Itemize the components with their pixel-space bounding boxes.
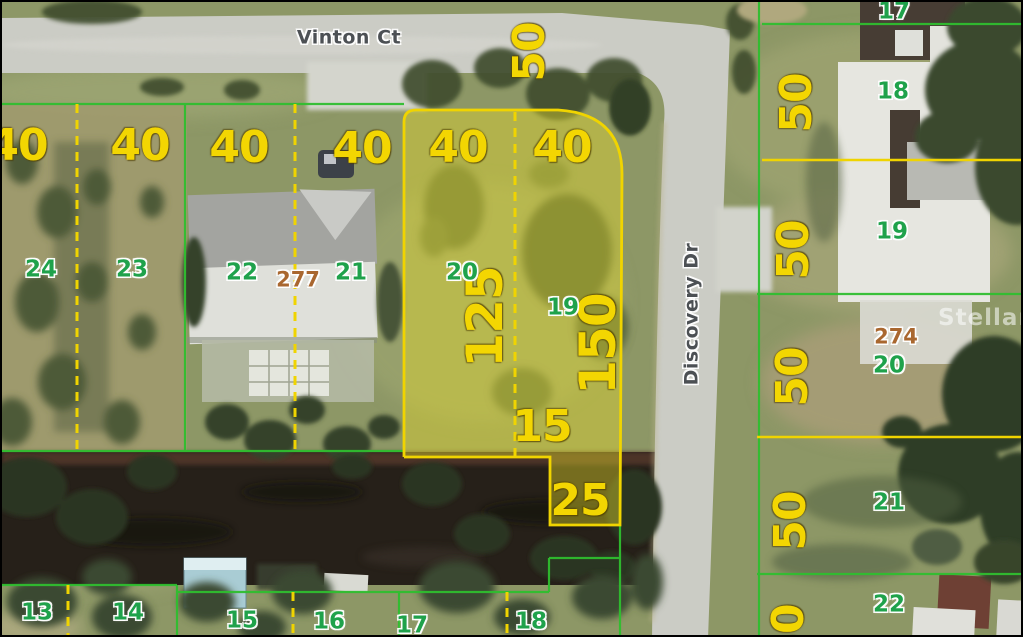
parcel-number: 20 [446, 262, 478, 285]
parcel-number: 16 [313, 611, 345, 634]
lot-dimension-label: 50 [775, 73, 819, 132]
lot-dimension-label: 40 [532, 126, 591, 170]
street-label-vinton-ct: Vinton Ct [297, 29, 401, 48]
parcel-number: 17 [878, 1, 910, 24]
lot-dimension-label: 40 [428, 126, 487, 170]
lot-dimension-label: 40 [110, 124, 169, 168]
block-number: 277 [276, 270, 320, 291]
parcel-number: 23 [116, 259, 148, 282]
lot-dimension-label: 15 [512, 405, 571, 449]
lot-dimension-label: 150 [573, 293, 623, 394]
block-number: 274 [874, 327, 918, 348]
parcel-number: 20 [873, 355, 905, 378]
parcel-number: 14 [112, 602, 144, 625]
parcel-number: 22 [873, 594, 905, 617]
parcel-number: 22 [226, 262, 258, 285]
parcel-number: 18 [877, 81, 909, 104]
parcel-number: 17 [396, 615, 428, 637]
plat-map: 40 40 40 40 40 40 50 50 50 50 50 50 125 … [0, 0, 1023, 637]
parcel-number: 21 [873, 492, 905, 515]
parcel-number: 24 [25, 259, 57, 282]
parcel-number: 21 [335, 262, 367, 285]
lot-dimension-label: 50 [772, 220, 816, 279]
parcel-number: 15 [226, 610, 258, 633]
lot-dimension-label: 40 [332, 127, 391, 171]
stellar-mls-watermark: StellarMLS [938, 307, 1023, 330]
parcel-number: 19 [547, 297, 579, 320]
parcel-number: 19 [876, 221, 908, 244]
lot-dimension-label: 50 [767, 604, 811, 637]
parcel-number: 13 [21, 602, 53, 625]
street-label-discovery-dr: Discovery Dr [683, 243, 702, 386]
lot-dimension-label: 40 [209, 126, 268, 170]
parcel-number: 18 [515, 611, 547, 634]
lot-dimension-label: 50 [508, 22, 552, 81]
lot-dimension-label: 40 [0, 124, 48, 168]
lot-dimension-label: 25 [550, 479, 609, 523]
lot-dimension-label: 50 [769, 491, 813, 550]
lot-dimension-label: 50 [771, 347, 815, 406]
